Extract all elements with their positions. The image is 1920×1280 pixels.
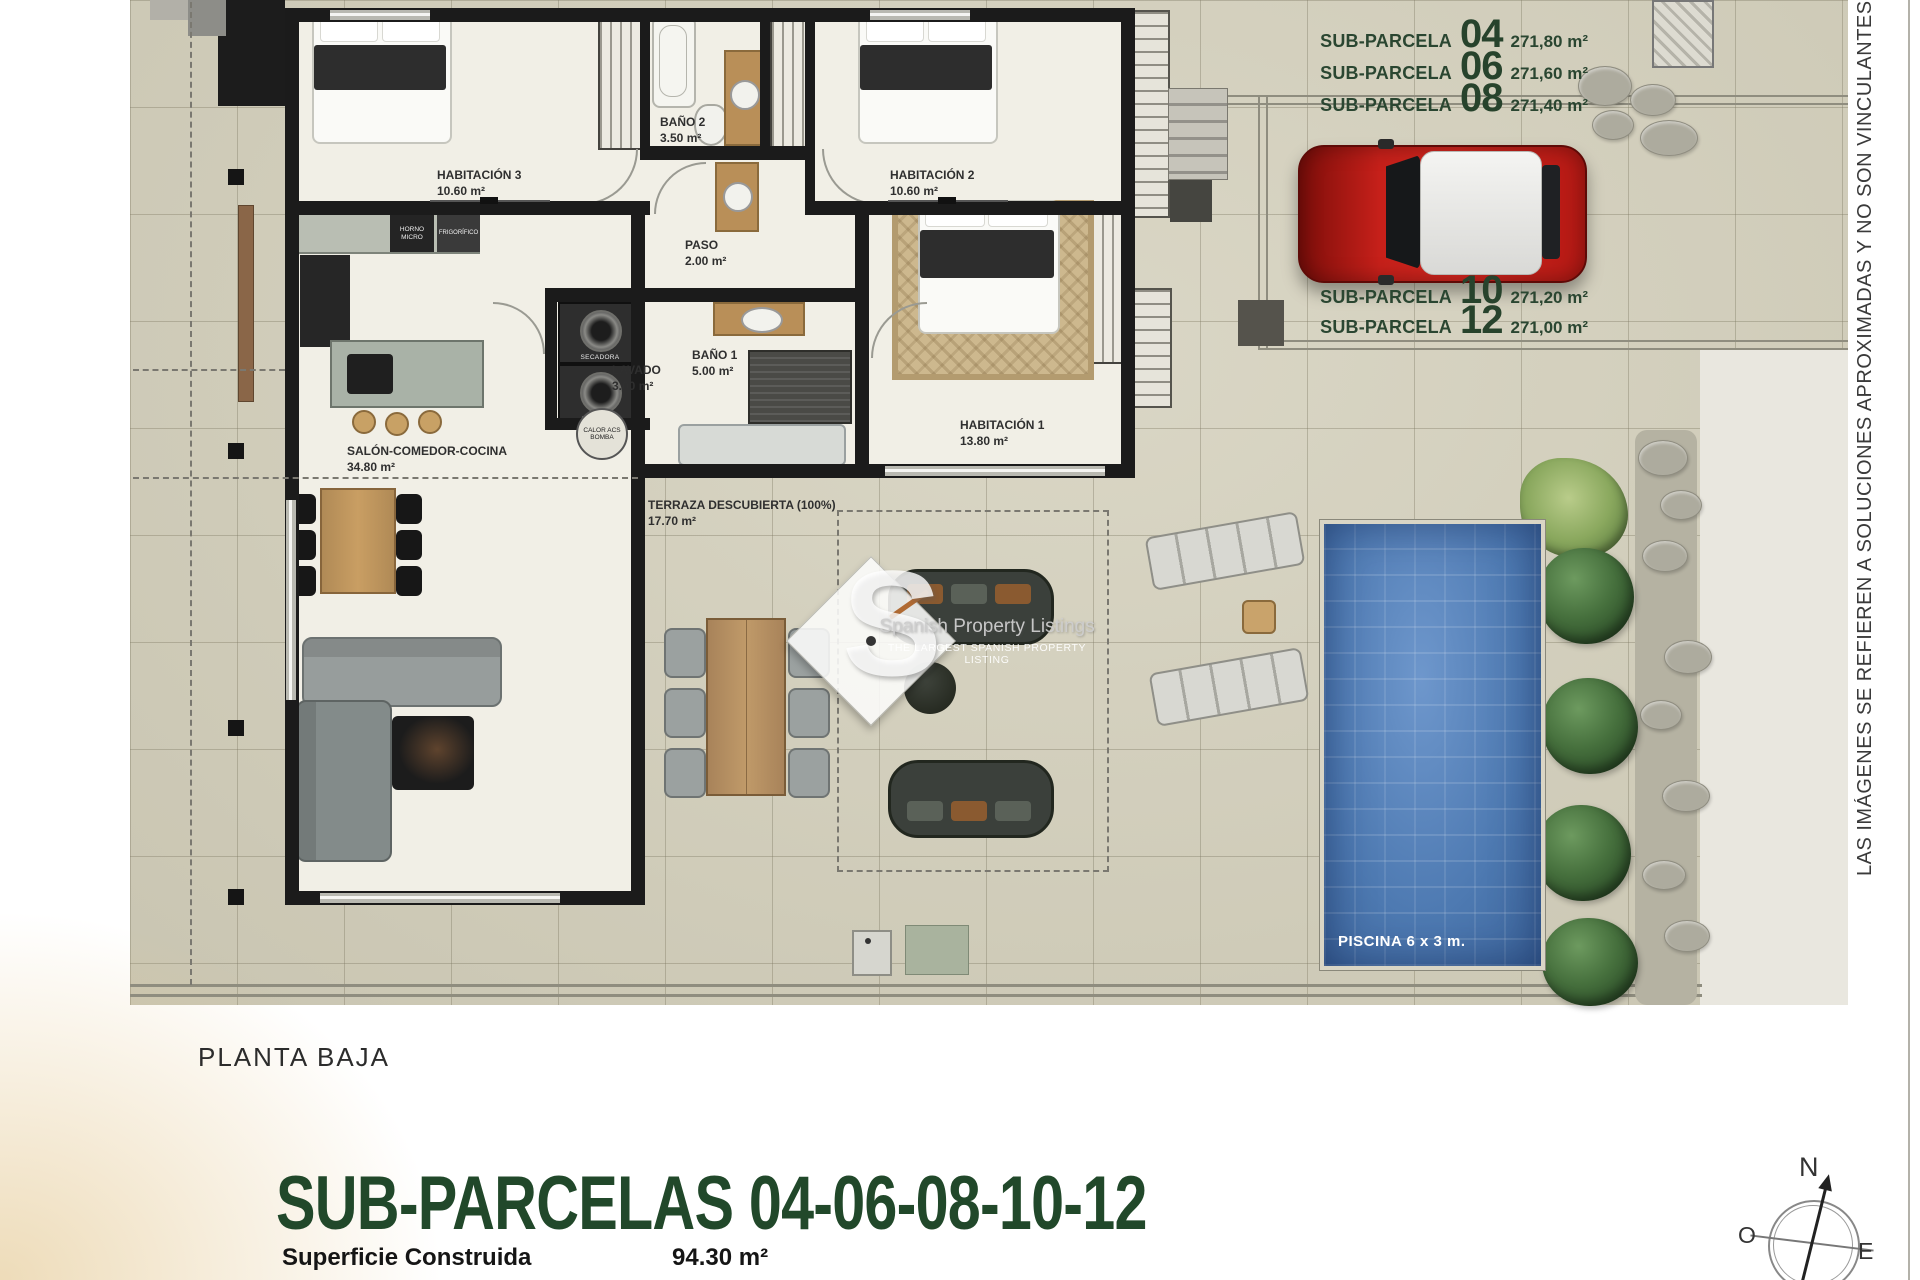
stair-railing (1130, 10, 1170, 218)
room-name: TERRAZA DESCUBIERTA (100%) (648, 498, 836, 514)
dryer-label: SECADORA (560, 354, 640, 361)
room-area: 10.60 m² (890, 184, 974, 200)
stool (385, 412, 409, 436)
stone (1630, 84, 1676, 116)
sub-parcela-row: SUB-PARCELA 12 271,00 m² (1288, 298, 1588, 343)
dining-chair (396, 530, 422, 560)
room-area: 3.00 m² (612, 379, 661, 395)
room-name: HABITACIÓN 3 (437, 168, 521, 184)
room-area: 13.80 m² (960, 434, 1044, 450)
sub-parcela-area: 271,40 m² (1511, 96, 1589, 116)
room-label-paso: PASO 2.00 m² (685, 238, 726, 269)
hall-vanity (715, 162, 759, 232)
vanity (713, 302, 805, 336)
tree (1535, 805, 1631, 901)
parking-line (1258, 348, 1848, 350)
window (286, 500, 296, 700)
outdoor-table (706, 618, 786, 796)
sub-parcela-row: SUB-PARCELA 08 271,40 m² (1288, 76, 1588, 121)
stone (1642, 540, 1688, 572)
room-area: 5.00 m² (692, 364, 737, 380)
wall (631, 215, 645, 905)
stair-landing (1170, 180, 1212, 222)
boiler: CALOR ACS BOMBA (576, 408, 628, 460)
outside-area (1700, 350, 1848, 1005)
wall (640, 146, 815, 160)
dryer-drum (580, 310, 622, 352)
entry-wall (218, 0, 285, 106)
room-label-salon: SALÓN-COMEDOR-COCINA 34.80 m² (347, 444, 507, 475)
stone (1640, 120, 1698, 156)
bed-blanket (860, 45, 992, 90)
bathtub (652, 16, 696, 108)
room-area: 34.80 m² (347, 460, 507, 476)
stone (1664, 920, 1710, 952)
room-name: HABITACIÓN 1 (960, 418, 1044, 434)
room-area: 3.50 m² (660, 131, 705, 147)
wardrobe (598, 15, 644, 150)
stair-railing (1130, 288, 1172, 408)
kitchen-tall-unit (300, 255, 350, 347)
stone (1638, 440, 1688, 476)
wall (545, 288, 860, 302)
oven-label: HORNO MICRO (390, 226, 434, 241)
window (330, 10, 430, 20)
porch-pillar (228, 169, 244, 185)
page-title: SUB-PARCELAS 04-06-08-10-12 (276, 1160, 1147, 1247)
entry-step (150, 0, 188, 20)
room-name: BAÑO 2 (660, 115, 705, 131)
fridge-label: FRIGORÍFICO (439, 230, 478, 237)
outdoor-chair (664, 688, 706, 738)
bed-blanket (920, 230, 1054, 278)
sun-lounger (1148, 647, 1309, 727)
kitchen-island (330, 340, 484, 408)
wall (805, 8, 815, 215)
wood-deck-strip (238, 205, 254, 402)
compass-north-label: N (1799, 1152, 1819, 1183)
utility-box (1238, 300, 1284, 346)
side-table (1242, 600, 1276, 634)
sub-parcela-label: SUB-PARCELA (1320, 95, 1452, 116)
room-label-bano2: BAÑO 2 3.50 m² (660, 115, 705, 146)
wall (855, 201, 869, 478)
compass-west-label: O (1738, 1222, 1756, 1249)
wall (545, 288, 557, 430)
window (870, 10, 970, 20)
stone (1640, 700, 1682, 730)
surface-value: 94.30 m² (672, 1244, 768, 1272)
room-label-habitacion3: HABITACIÓN 3 10.60 m² (437, 168, 521, 199)
room-name: BAÑO 1 (692, 348, 737, 364)
room-area: 17.70 m² (648, 514, 836, 530)
room-label-bano1: BAÑO 1 5.00 m² (692, 348, 737, 379)
floor-label: PLANTA BAJA (198, 1042, 390, 1073)
outdoor-mat (905, 925, 969, 975)
fridge: FRIGORÍFICO (437, 215, 480, 252)
sub-parcela-number: 12 (1460, 298, 1503, 343)
room-area: 10.60 m² (437, 184, 521, 200)
wall (1121, 8, 1135, 478)
sub-parcela-area: 271,00 m² (1511, 318, 1589, 338)
boundary-dashed-line (190, 2, 192, 985)
room-label-lavado: LAVADO 3.00 m² (612, 363, 661, 394)
dining-chair (396, 566, 422, 596)
stone (1660, 490, 1702, 520)
sofa (302, 637, 502, 707)
hatched-pad (1652, 0, 1714, 68)
dining-table (320, 488, 396, 594)
plot-boundary-line (130, 994, 1702, 997)
stairs (1168, 88, 1228, 180)
tree (1542, 918, 1638, 1006)
outdoor-chair (788, 748, 830, 798)
tree (1538, 548, 1634, 644)
wall (285, 201, 650, 215)
stone (1664, 640, 1712, 674)
watermark-line2: THE LARGEST SPANISH PROPERTY LISTING (872, 642, 1102, 666)
boundary-dashed-line (133, 369, 285, 371)
pool-label: PISCINA 6 x 3 m. (1338, 933, 1466, 950)
room-label-habitacion1: HABITACIÓN 1 13.80 m² (960, 418, 1044, 449)
car-roof (1420, 151, 1542, 275)
wardrobe (770, 15, 809, 150)
room-label-terraza: TERRAZA DESCUBIERTA (100%) 17.70 m² (648, 498, 836, 529)
wall (760, 8, 770, 160)
sub-parcela-number: 08 (1460, 76, 1503, 121)
boiler-label: CALOR ACS BOMBA (578, 427, 626, 442)
outdoor-chair (664, 628, 706, 678)
car (1298, 141, 1583, 283)
bed-blanket (314, 45, 446, 90)
room-name: LAVADO (612, 363, 661, 379)
room-name: PASO (685, 238, 726, 254)
room-area: 2.00 m² (685, 254, 726, 270)
vanity (724, 50, 762, 146)
compass-arrowhead (1818, 1173, 1835, 1192)
bathtub (678, 424, 846, 466)
dryer: SECADORA (558, 302, 642, 364)
oven-microwave: HORNO MICRO (390, 215, 434, 252)
sub-parcela-label: SUB-PARCELA (1320, 317, 1452, 338)
porch-pillar (228, 889, 244, 905)
car-rear-window (1542, 165, 1560, 259)
pool: PISCINA 6 x 3 m. (1320, 520, 1545, 970)
room-name: SALÓN-COMEDOR-COCINA (347, 444, 507, 460)
stone (1592, 110, 1634, 140)
outdoor-chair (788, 688, 830, 738)
wall (285, 8, 299, 905)
porch-pillar (228, 443, 244, 459)
sofa (296, 700, 392, 862)
car-mirror (1378, 139, 1394, 149)
floor-plan-page: PISCINA 6 x 3 m. (0, 0, 1920, 1280)
stool (352, 410, 376, 434)
stone (1642, 860, 1686, 890)
sun-lounger (1144, 511, 1305, 591)
stool (418, 410, 442, 434)
wall (640, 8, 650, 160)
plot-boundary-line (130, 984, 1702, 987)
compass-east-label: E (1858, 1238, 1873, 1265)
porch-pillar (228, 720, 244, 736)
sliding-door (320, 893, 560, 903)
car-windshield (1386, 155, 1420, 269)
parcel-dashed-line (133, 477, 638, 479)
page-edge-line (1908, 0, 1910, 1280)
tree (1542, 678, 1638, 774)
shower-pole (865, 938, 871, 944)
watermark-line1: Spanish Property Listings (872, 616, 1102, 638)
surface-label: Superficie Construida (282, 1244, 531, 1272)
dining-chair (396, 494, 422, 524)
floor-plan: PISCINA 6 x 3 m. (130, 0, 1848, 1005)
entry-pillar (188, 0, 226, 36)
outdoor-chair (664, 748, 706, 798)
sliding-door (885, 466, 1105, 476)
room-label-habitacion2: HABITACIÓN 2 10.60 m² (890, 168, 974, 199)
disclaimer-vertical-text: LAS IMÁGENES SE REFIEREN A SOLUCIONES AP… (1854, 0, 1888, 876)
shower (748, 350, 852, 424)
room-name: HABITACIÓN 2 (890, 168, 974, 184)
outdoor-shower (852, 930, 892, 976)
stone (1662, 780, 1710, 812)
coffee-table (392, 716, 474, 790)
